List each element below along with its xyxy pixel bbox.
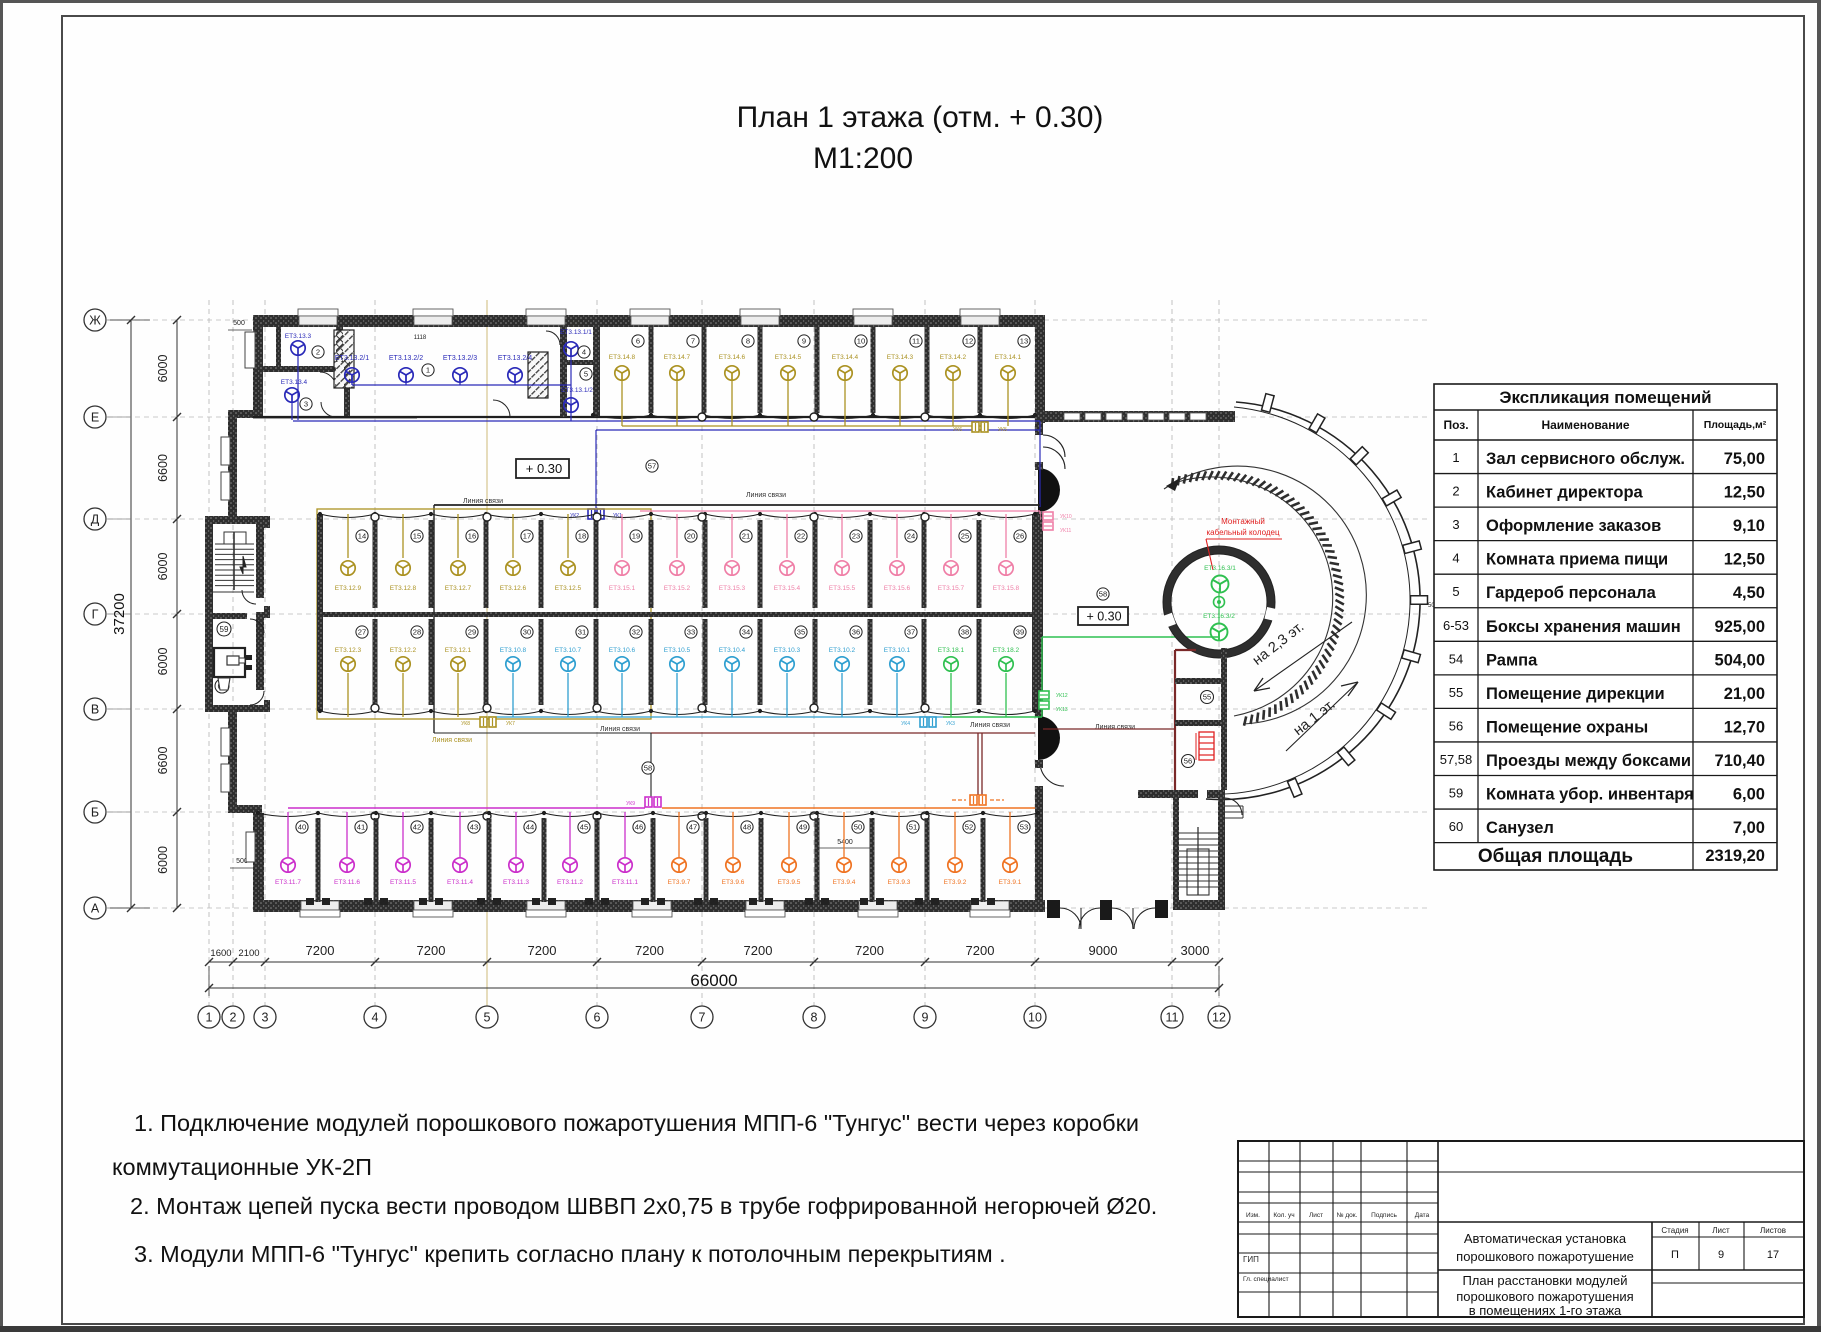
svg-text:Листов: Листов bbox=[1760, 1226, 1786, 1235]
svg-text:УК1: УК1 bbox=[613, 513, 622, 519]
svg-text:Линия связи: Линия связи bbox=[746, 492, 786, 499]
svg-text:2100: 2100 bbox=[238, 948, 259, 959]
svg-text:ЕТ3.13.2/4: ЕТ3.13.2/4 bbox=[498, 355, 532, 362]
svg-text:56: 56 bbox=[1449, 718, 1463, 733]
svg-text:ЕТ3.14.7: ЕТ3.14.7 bbox=[664, 354, 691, 361]
svg-text:ЕТ3.11.3: ЕТ3.11.3 bbox=[503, 879, 529, 886]
svg-text:26: 26 bbox=[1016, 532, 1024, 541]
svg-text:33: 33 bbox=[687, 628, 695, 637]
svg-text:66000: 66000 bbox=[690, 971, 737, 990]
svg-text:29: 29 bbox=[468, 628, 476, 637]
svg-text:ЕТ3.9.3: ЕТ3.9.3 bbox=[888, 879, 911, 886]
svg-text:53: 53 bbox=[1020, 823, 1028, 832]
svg-text:2: 2 bbox=[316, 348, 320, 357]
svg-text:ЕТ3.15.5: ЕТ3.15.5 bbox=[829, 585, 856, 592]
svg-text:Кол. уч: Кол. уч bbox=[1273, 1212, 1294, 1219]
svg-text:ЕТ3.11.1: ЕТ3.11.1 bbox=[612, 879, 638, 886]
svg-text:2319,20: 2319,20 bbox=[1705, 847, 1765, 865]
svg-text:6-53: 6-53 bbox=[1443, 618, 1469, 633]
svg-text:43: 43 bbox=[470, 823, 478, 832]
svg-text:41: 41 bbox=[357, 823, 365, 832]
svg-text:ЕТ3.13.1/1: ЕТ3.13.1/1 bbox=[560, 329, 592, 336]
svg-text:11: 11 bbox=[912, 337, 920, 346]
svg-text:Линия связи: Линия связи bbox=[1095, 724, 1135, 731]
svg-text:27: 27 bbox=[358, 628, 366, 637]
svg-text:37: 37 bbox=[907, 628, 915, 637]
svg-text:ЕТ3.12.6: ЕТ3.12.6 bbox=[500, 585, 527, 592]
svg-text:59: 59 bbox=[1449, 786, 1463, 801]
svg-text:5: 5 bbox=[484, 1011, 491, 1025]
svg-text:504,00: 504,00 bbox=[1715, 651, 1765, 669]
svg-text:925,00: 925,00 bbox=[1715, 618, 1765, 636]
svg-text:ЕТ3.11.4: ЕТ3.11.4 bbox=[447, 879, 473, 886]
svg-text:57,58: 57,58 bbox=[1440, 752, 1473, 767]
svg-text:ЕТ3.13.1/2: ЕТ3.13.1/2 bbox=[561, 387, 593, 394]
svg-text:ЕТ3.10.2: ЕТ3.10.2 bbox=[829, 647, 856, 654]
svg-text:1: 1 bbox=[426, 366, 430, 375]
svg-text:47: 47 bbox=[689, 823, 697, 832]
svg-text:ЕТ3.14.4: ЕТ3.14.4 bbox=[832, 354, 859, 361]
svg-text:75,00: 75,00 bbox=[1724, 450, 1765, 468]
svg-text:Изм.: Изм. bbox=[1246, 1212, 1260, 1219]
svg-text:4,50: 4,50 bbox=[1733, 584, 1765, 602]
svg-text:ЕТ3.13.2/1: ЕТ3.13.2/1 bbox=[335, 355, 369, 362]
svg-text:Оформление заказов: Оформление заказов bbox=[1486, 517, 1661, 535]
svg-text:кабельный колодец: кабельный колодец bbox=[1206, 528, 1280, 537]
svg-text:6000: 6000 bbox=[156, 846, 170, 874]
svg-text:ЕТ3.10.6: ЕТ3.10.6 bbox=[609, 647, 636, 654]
svg-text:23: 23 bbox=[852, 532, 860, 541]
svg-text:План 1 этажа (отм. + 0.30): План 1 этажа (отм. + 0.30) bbox=[737, 101, 1104, 134]
svg-text:ЕТ3.15.2: ЕТ3.15.2 bbox=[664, 585, 691, 592]
svg-text:7200: 7200 bbox=[855, 943, 884, 958]
svg-text:37200: 37200 bbox=[111, 593, 128, 635]
svg-text:7200: 7200 bbox=[306, 943, 335, 958]
svg-text:3000: 3000 bbox=[1181, 943, 1210, 958]
svg-text:+ 0.30: + 0.30 bbox=[1086, 610, 1121, 624]
svg-text:УК4: УК4 bbox=[901, 721, 910, 727]
svg-text:19: 19 bbox=[632, 532, 640, 541]
svg-text:ЕТ3.10.1: ЕТ3.10.1 bbox=[884, 647, 911, 654]
svg-text:УК7: УК7 bbox=[506, 721, 515, 727]
svg-text:4: 4 bbox=[582, 348, 586, 357]
svg-text:9: 9 bbox=[802, 337, 806, 346]
svg-text:12: 12 bbox=[965, 337, 973, 346]
svg-text:7: 7 bbox=[691, 337, 695, 346]
svg-text:ЕТ3.15.3: ЕТ3.15.3 bbox=[719, 585, 746, 592]
svg-text:П: П bbox=[1671, 1249, 1679, 1261]
svg-text:ЕТ3.9.2: ЕТ3.9.2 bbox=[944, 879, 967, 886]
svg-text:В: В bbox=[91, 703, 99, 717]
svg-text:Зал сервисного обслуж.: Зал сервисного обслуж. bbox=[1486, 450, 1685, 468]
svg-text:10: 10 bbox=[857, 337, 865, 346]
svg-text:20: 20 bbox=[687, 532, 695, 541]
svg-text:54: 54 bbox=[1449, 651, 1463, 666]
svg-text:ЕТ3.10.7: ЕТ3.10.7 bbox=[555, 647, 582, 654]
svg-text:ЕТ3.10.3: ЕТ3.10.3 bbox=[774, 647, 801, 654]
svg-text:10: 10 bbox=[1028, 1011, 1042, 1025]
svg-text:ЕТ3.11.6: ЕТ3.11.6 bbox=[334, 879, 360, 886]
svg-text:12,50: 12,50 bbox=[1724, 551, 1765, 569]
svg-text:ЕТ3.10.4: ЕТ3.10.4 bbox=[719, 647, 746, 654]
svg-text:УК12: УК12 bbox=[1056, 693, 1068, 699]
svg-text:ЕТ3.16.3/1: ЕТ3.16.3/1 bbox=[1204, 565, 1236, 572]
svg-text:31: 31 bbox=[578, 628, 586, 637]
svg-text:Д: Д bbox=[91, 513, 100, 527]
svg-text:9,10: 9,10 bbox=[1733, 517, 1765, 535]
svg-text:18: 18 bbox=[578, 532, 586, 541]
svg-text:Площадь,м²: Площадь,м² bbox=[1704, 419, 1767, 431]
svg-text:50: 50 bbox=[854, 823, 862, 832]
svg-text:коммутационные УК-2П: коммутационные УК-2П bbox=[112, 1154, 372, 1180]
svg-text:ГИП: ГИП bbox=[1243, 1255, 1259, 1264]
svg-text:57: 57 bbox=[648, 462, 656, 471]
svg-text:1: 1 bbox=[206, 1011, 213, 1025]
svg-text:2: 2 bbox=[230, 1011, 237, 1025]
svg-text:ЕТ3.11.5: ЕТ3.11.5 bbox=[390, 879, 416, 886]
svg-text:6,00: 6,00 bbox=[1733, 786, 1765, 804]
svg-text:Лист: Лист bbox=[1309, 1212, 1323, 1219]
svg-text:Г: Г bbox=[92, 608, 99, 622]
svg-text:Поз.: Поз. bbox=[1443, 418, 1468, 432]
svg-text:ЕТ3.13.3: ЕТ3.13.3 bbox=[285, 333, 312, 340]
svg-text:6600: 6600 bbox=[156, 454, 170, 482]
svg-text:3: 3 bbox=[262, 1011, 269, 1025]
svg-text:12,70: 12,70 bbox=[1724, 718, 1765, 736]
svg-text:ЕТ3.9.1: ЕТ3.9.1 bbox=[999, 879, 1022, 886]
svg-text:Монтажный: Монтажный bbox=[1221, 517, 1265, 526]
svg-text:Санузел: Санузел bbox=[1486, 819, 1554, 837]
svg-text:Линия связи: Линия связи bbox=[600, 726, 640, 733]
svg-text:Боксы хранения машин: Боксы хранения машин bbox=[1486, 618, 1681, 636]
svg-text:40: 40 bbox=[298, 823, 306, 832]
svg-text:УК8: УК8 bbox=[461, 721, 470, 727]
svg-text:6600: 6600 bbox=[156, 747, 170, 775]
svg-text:ЕТ3.10.5: ЕТ3.10.5 bbox=[664, 647, 691, 654]
svg-text:УК10: УК10 bbox=[1060, 514, 1072, 520]
svg-text:51: 51 bbox=[909, 823, 917, 832]
svg-text:34: 34 bbox=[742, 628, 750, 637]
svg-text:УК5: УК5 bbox=[998, 427, 1007, 433]
svg-text:21,00: 21,00 bbox=[1724, 685, 1765, 703]
svg-text:№ док.: № док. bbox=[1337, 1212, 1358, 1219]
svg-text:6: 6 bbox=[594, 1011, 601, 1025]
svg-text:ЕТ3.15.6: ЕТ3.15.6 bbox=[884, 585, 911, 592]
svg-text:Линия связи: Линия связи bbox=[970, 722, 1010, 729]
svg-text:порошкового пожаротушения: порошкового пожаротушения bbox=[1456, 1289, 1633, 1304]
svg-text:ЕТ3.18.1: ЕТ3.18.1 bbox=[938, 647, 965, 654]
svg-text:55: 55 bbox=[1449, 685, 1463, 700]
svg-text:Автоматическая установка: Автоматическая установка bbox=[1464, 1231, 1627, 1246]
svg-text:Кабинет директора: Кабинет директора bbox=[1486, 484, 1644, 502]
svg-text:8: 8 bbox=[811, 1011, 818, 1025]
svg-text:12,50: 12,50 bbox=[1724, 484, 1765, 502]
svg-text:500: 500 bbox=[233, 320, 245, 327]
svg-text:ЕТ3.14.5: ЕТ3.14.5 bbox=[775, 354, 802, 361]
svg-text:11: 11 bbox=[1166, 1011, 1179, 1025]
svg-text:ЕТ3.15.7: ЕТ3.15.7 bbox=[938, 585, 965, 592]
svg-text:56: 56 bbox=[1184, 757, 1192, 766]
svg-text:Дата: Дата bbox=[1415, 1212, 1430, 1219]
svg-text:21: 21 bbox=[742, 532, 750, 541]
svg-text:710,40: 710,40 bbox=[1715, 752, 1765, 770]
svg-text:М1:200: М1:200 bbox=[813, 142, 913, 175]
svg-text:9000: 9000 bbox=[1089, 943, 1118, 958]
svg-text:Б: Б bbox=[91, 806, 99, 820]
svg-text:52: 52 bbox=[965, 823, 973, 832]
svg-text:1600: 1600 bbox=[210, 948, 231, 959]
svg-text:А: А bbox=[91, 902, 100, 916]
svg-text:25: 25 bbox=[961, 532, 969, 541]
svg-text:6000: 6000 bbox=[156, 648, 170, 676]
svg-text:3: 3 bbox=[304, 400, 308, 409]
svg-text:14: 14 bbox=[358, 532, 366, 541]
svg-text:2: 2 bbox=[1452, 484, 1459, 499]
svg-text:УК2: УК2 bbox=[570, 513, 579, 519]
svg-text:ЕТ3.15.8: ЕТ3.15.8 bbox=[993, 585, 1020, 592]
svg-text:ЕТ3.12.5: ЕТ3.12.5 bbox=[555, 585, 582, 592]
svg-text:УК13: УК13 bbox=[1056, 707, 1068, 713]
svg-text:ЕТ3.13.2/3: ЕТ3.13.2/3 bbox=[443, 355, 477, 362]
svg-text:46: 46 bbox=[635, 823, 643, 832]
svg-text:Помещение охраны: Помещение охраны bbox=[1486, 718, 1648, 736]
svg-text:4: 4 bbox=[1452, 551, 1459, 566]
svg-text:7200: 7200 bbox=[966, 943, 995, 958]
svg-text:55: 55 bbox=[1203, 693, 1211, 702]
svg-text:6000: 6000 bbox=[156, 553, 170, 581]
svg-text:ЕТ3.14.3: ЕТ3.14.3 bbox=[887, 354, 914, 361]
svg-text:ЕТ3.12.2: ЕТ3.12.2 bbox=[390, 647, 417, 654]
svg-text:39: 39 bbox=[1016, 628, 1024, 637]
svg-text:3: 3 bbox=[1452, 517, 1459, 532]
svg-text:28: 28 bbox=[413, 628, 421, 637]
svg-text:7,00: 7,00 bbox=[1733, 819, 1765, 837]
svg-text:Гардероб персонала: Гардероб персонала bbox=[1486, 584, 1657, 602]
svg-text:60: 60 bbox=[1449, 819, 1463, 834]
svg-text:6000: 6000 bbox=[156, 355, 170, 383]
svg-text:58: 58 bbox=[644, 764, 652, 773]
svg-text:ЕТ3.9.7: ЕТ3.9.7 bbox=[668, 879, 691, 886]
svg-text:Общая площадь: Общая площадь bbox=[1478, 846, 1633, 867]
svg-text:6: 6 bbox=[636, 337, 640, 346]
svg-text:ЕТ3.14.8: ЕТ3.14.8 bbox=[609, 354, 636, 361]
svg-text:1. Подключение модулей порошко: 1. Подключение модулей порошкового пожар… bbox=[134, 1110, 1139, 1136]
svg-text:45: 45 bbox=[580, 823, 588, 832]
svg-text:17: 17 bbox=[523, 532, 531, 541]
svg-text:ЕТ3.12.3: ЕТ3.12.3 bbox=[335, 647, 362, 654]
svg-text:Наименование: Наименование bbox=[1541, 418, 1629, 432]
svg-text:Подпись: Подпись bbox=[1371, 1212, 1397, 1219]
svg-text:35: 35 bbox=[797, 628, 805, 637]
svg-text:ЕТ3.15.4: ЕТ3.15.4 bbox=[774, 585, 801, 592]
svg-text:ЕТ3.9.5: ЕТ3.9.5 bbox=[778, 879, 801, 886]
svg-text:1: 1 bbox=[1452, 450, 1459, 465]
svg-text:36: 36 bbox=[852, 628, 860, 637]
svg-text:Ж: Ж bbox=[89, 314, 101, 328]
svg-text:Проезды между боксами: Проезды между боксами bbox=[1486, 752, 1691, 770]
svg-text:Экспликация помещений: Экспликация помещений bbox=[1499, 388, 1711, 407]
svg-text:Комната убор. инвентаря: Комната убор. инвентаря bbox=[1486, 786, 1694, 804]
svg-text:ЕТ3.12.8: ЕТ3.12.8 bbox=[390, 585, 417, 592]
svg-text:Стадия: Стадия bbox=[1661, 1226, 1688, 1235]
svg-text:ЕТ3.14.6: ЕТ3.14.6 bbox=[719, 354, 746, 361]
svg-text:ЕТ3.11.2: ЕТ3.11.2 bbox=[557, 879, 583, 886]
svg-text:УК3: УК3 bbox=[946, 721, 955, 727]
svg-text:ЕТ3.13.4: ЕТ3.13.4 bbox=[281, 379, 308, 386]
svg-text:38: 38 bbox=[961, 628, 969, 637]
svg-text:Рампа: Рампа bbox=[1486, 651, 1538, 669]
svg-text:7200: 7200 bbox=[744, 943, 773, 958]
svg-text:7200: 7200 bbox=[635, 943, 664, 958]
svg-text:59: 59 bbox=[220, 625, 229, 634]
svg-text:5: 5 bbox=[584, 370, 588, 379]
svg-text:13: 13 bbox=[1020, 337, 1028, 346]
svg-text:ЕТ3.14.2: ЕТ3.14.2 bbox=[940, 354, 967, 361]
svg-text:7200: 7200 bbox=[417, 943, 446, 958]
svg-text:Лист: Лист bbox=[1712, 1226, 1730, 1235]
svg-text:5: 5 bbox=[1452, 584, 1459, 599]
svg-text:7200: 7200 bbox=[528, 943, 557, 958]
svg-text:УК6: УК6 bbox=[953, 427, 962, 433]
svg-text:22: 22 bbox=[797, 532, 805, 541]
svg-text:58: 58 bbox=[1099, 590, 1107, 599]
svg-text:УК9: УК9 bbox=[626, 801, 635, 807]
svg-text:30: 30 bbox=[523, 628, 531, 637]
svg-text:17: 17 bbox=[1767, 1249, 1779, 1261]
svg-text:ЕТ3.9.4: ЕТ3.9.4 bbox=[833, 879, 856, 886]
svg-text:Е: Е bbox=[91, 411, 99, 425]
svg-text:Линия связи: Линия связи bbox=[463, 498, 503, 505]
svg-text:44: 44 bbox=[526, 823, 534, 832]
svg-text:ЕТ3.10.8: ЕТ3.10.8 bbox=[500, 647, 527, 654]
svg-text:ЕТ3.11.7: ЕТ3.11.7 bbox=[275, 879, 301, 886]
svg-text:15: 15 bbox=[413, 532, 421, 541]
svg-text:3. Модули МПП-6 "Тунгус" крепи: 3. Модули МПП-6 "Тунгус" крепить согласн… bbox=[134, 1241, 1006, 1267]
svg-text:48: 48 bbox=[743, 823, 751, 832]
svg-text:8: 8 bbox=[746, 337, 750, 346]
svg-text:ЕТ3.13.2/2: ЕТ3.13.2/2 bbox=[389, 355, 423, 362]
svg-text:4: 4 bbox=[372, 1011, 379, 1025]
svg-text:7: 7 bbox=[699, 1011, 706, 1025]
svg-text:2. Монтаж цепей пуска вести пр: 2. Монтаж цепей пуска вести проводом ШВВ… bbox=[130, 1193, 1157, 1219]
svg-text:ЕТ3.18.2: ЕТ3.18.2 bbox=[993, 647, 1020, 654]
svg-text:+ 0.30: + 0.30 bbox=[526, 461, 563, 476]
svg-text:24: 24 bbox=[907, 532, 915, 541]
svg-text:в помещениях 1-го этажа: в помещениях 1-го этажа bbox=[1469, 1303, 1622, 1318]
svg-text:9: 9 bbox=[922, 1011, 929, 1025]
svg-text:Линия связи: Линия связи bbox=[432, 737, 472, 744]
svg-text:ЕТ3.12.7: ЕТ3.12.7 bbox=[445, 585, 472, 592]
svg-text:32: 32 bbox=[632, 628, 640, 637]
svg-text:1118: 1118 bbox=[414, 335, 427, 341]
svg-text:УК11: УК11 bbox=[1060, 528, 1071, 534]
svg-text:Гл. специалист: Гл. специалист bbox=[1243, 1276, 1289, 1283]
svg-text:9: 9 bbox=[1718, 1249, 1724, 1261]
svg-text:ЕТ3.15.1: ЕТ3.15.1 bbox=[609, 585, 636, 592]
svg-text:Комната приема пищи: Комната приема пищи bbox=[1486, 551, 1668, 569]
svg-text:ЕТ3.12.1: ЕТ3.12.1 bbox=[445, 647, 472, 654]
svg-text:16: 16 bbox=[468, 532, 476, 541]
svg-text:ЕТ3.12.9: ЕТ3.12.9 bbox=[335, 585, 362, 592]
svg-text:порошкового пожаротушение: порошкового пожаротушение bbox=[1456, 1249, 1634, 1264]
svg-text:Помещение дирекции: Помещение дирекции bbox=[1486, 685, 1665, 703]
svg-text:ЕТ3.14.1: ЕТ3.14.1 bbox=[995, 354, 1022, 361]
svg-text:49: 49 bbox=[799, 823, 807, 832]
svg-text:42: 42 bbox=[413, 823, 421, 832]
svg-text:План расстановки модулей: План расстановки модулей bbox=[1462, 1273, 1627, 1288]
svg-text:ЕТ3.9.6: ЕТ3.9.6 bbox=[722, 879, 745, 886]
svg-text:5400: 5400 bbox=[837, 839, 853, 846]
svg-text:12: 12 bbox=[1212, 1011, 1226, 1025]
